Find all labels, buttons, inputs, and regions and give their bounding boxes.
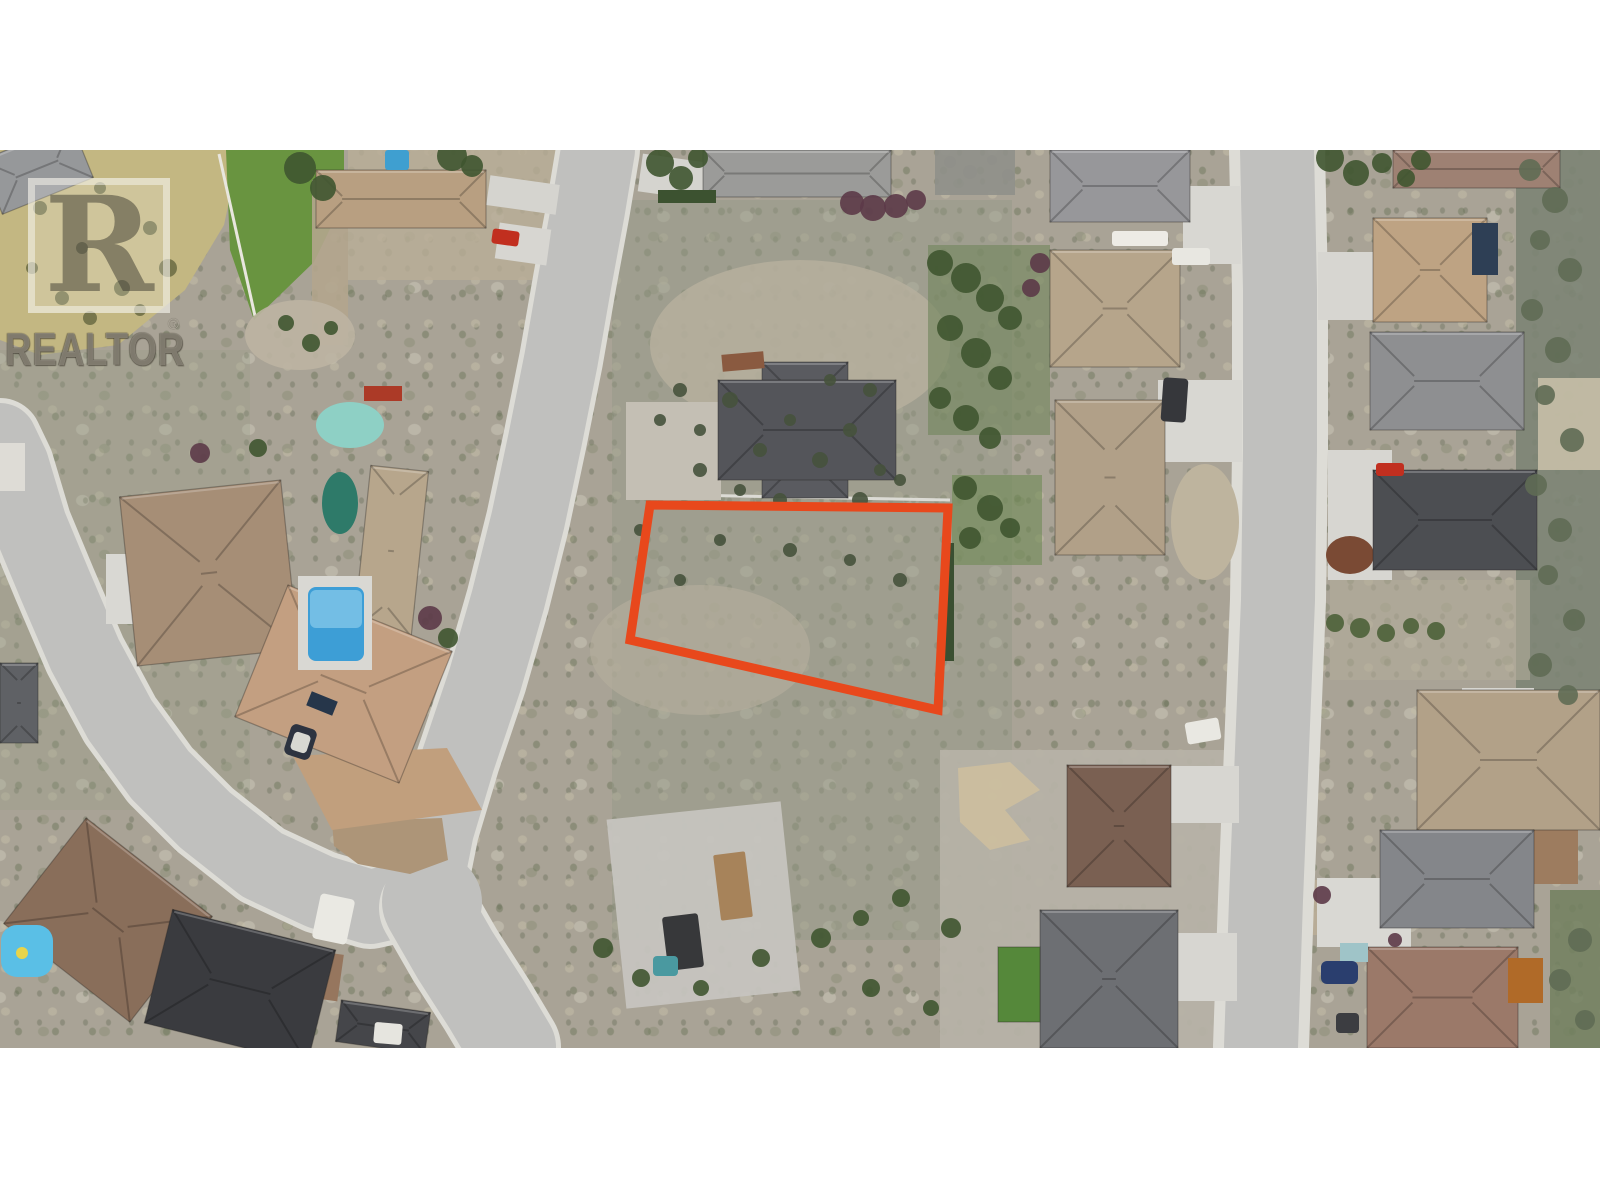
field-scrub (26, 262, 38, 274)
hillside-scrub (1528, 653, 1552, 677)
pool-floatie (16, 947, 28, 959)
tree (302, 334, 320, 352)
tree (977, 495, 1003, 521)
house-roof (1367, 947, 1518, 1048)
wood-deck (1508, 958, 1543, 1003)
tree (632, 969, 650, 987)
lot-bushes (673, 383, 687, 397)
bush-row (1377, 624, 1395, 642)
teal-truck (653, 956, 678, 976)
house-roof (316, 170, 486, 228)
tree (853, 910, 869, 926)
purple-tree (1388, 933, 1402, 947)
lot-bushes (722, 392, 738, 408)
lot-bushes (844, 554, 856, 566)
tree (1397, 169, 1415, 187)
pool-cover (310, 590, 362, 628)
tree (929, 387, 951, 409)
tree (278, 315, 294, 331)
white-rv (1112, 231, 1168, 246)
purple-tree (1313, 886, 1331, 904)
hillside-scrub (1535, 385, 1555, 405)
hillside-scrub (1525, 474, 1547, 496)
tree (951, 263, 981, 293)
tree (438, 628, 458, 648)
tree (892, 889, 910, 907)
white-rv (373, 1022, 403, 1045)
gravel-garden (245, 300, 355, 370)
tree (862, 979, 880, 997)
house-roof (1067, 765, 1171, 887)
hedge (658, 190, 716, 203)
purple-tree (840, 191, 864, 215)
purple-tree (884, 194, 908, 218)
white-rv (1184, 717, 1221, 745)
lot-bushes (784, 414, 796, 426)
lot-bushes (783, 543, 797, 557)
house-roof (1370, 332, 1524, 430)
lot-bushes (812, 452, 828, 468)
tree (1411, 150, 1431, 170)
blue-boat (1321, 961, 1358, 984)
lot-bushes (674, 574, 686, 586)
field-scrub (33, 201, 47, 215)
lot-bushes (894, 474, 906, 486)
tree (1343, 160, 1369, 186)
rocks (1002, 169, 1014, 181)
white-car (1172, 248, 1210, 265)
field-scrub (114, 280, 130, 296)
tree (646, 150, 674, 177)
rocks (987, 155, 997, 165)
tree (959, 527, 981, 549)
lot-bushes (714, 534, 726, 546)
lot-bushes (893, 573, 907, 587)
tree (923, 1000, 939, 1016)
field-scrub (55, 291, 69, 305)
hillside-scrub (1521, 299, 1543, 321)
lawn-strip (998, 947, 1040, 1022)
field-scrub (143, 221, 157, 235)
gravel-circle (1171, 464, 1239, 580)
house-roof (1380, 830, 1534, 928)
tree (249, 439, 267, 457)
lot-bushes (693, 463, 707, 477)
tree (988, 366, 1012, 390)
house-roof (1040, 910, 1178, 1048)
lot-bushes (863, 383, 877, 397)
tree (953, 476, 977, 500)
purple-tree (860, 195, 886, 221)
lot-bushes (843, 423, 857, 437)
purple-tree (906, 190, 926, 210)
house-roof (1417, 690, 1600, 830)
tree (979, 427, 1001, 449)
house-roof (1055, 400, 1165, 555)
house-roof (703, 150, 891, 197)
purple-tree (190, 443, 210, 463)
white-shed (0, 443, 25, 491)
hillside-scrub (1575, 1010, 1595, 1030)
tree (961, 338, 991, 368)
house-roof (1050, 250, 1180, 367)
rocks (944, 156, 956, 168)
house-roof (1373, 470, 1537, 570)
tree (593, 938, 613, 958)
brown-landscape-circle (1326, 536, 1374, 574)
hillside-scrub (1560, 428, 1584, 452)
field-scrub (94, 182, 106, 194)
real-estate-listing-photo-page: R REALTOR ® (0, 0, 1600, 1200)
bush-row (1350, 618, 1370, 638)
right-street (1261, 150, 1280, 1047)
teal-shed (1340, 943, 1368, 962)
tree (752, 949, 770, 967)
hillside-scrub (1538, 565, 1558, 585)
field-scrub (76, 242, 88, 254)
lot-bushes (824, 374, 836, 386)
bush-row (1403, 618, 1419, 634)
tree (693, 980, 709, 996)
rocks (963, 165, 977, 179)
hillside-scrub (1563, 609, 1585, 631)
aerial-photo (0, 150, 1600, 1048)
purple-tree (418, 606, 442, 630)
hillside-scrub (1558, 685, 1578, 705)
dark-pool (322, 472, 358, 534)
tree (461, 155, 483, 177)
house-roof (1373, 218, 1487, 322)
hillside-scrub (1568, 928, 1592, 952)
tree (1372, 153, 1392, 173)
solar-panels (1472, 223, 1498, 275)
tree (941, 918, 961, 938)
hillside-scrub (1519, 159, 1541, 181)
tree (953, 405, 979, 431)
tree (669, 166, 693, 190)
lot-bushes (874, 464, 886, 476)
tree (927, 250, 953, 276)
dirt-patch (590, 585, 810, 715)
tree (310, 175, 336, 201)
gravel-apron (626, 402, 721, 500)
house-roof (0, 663, 38, 743)
hillside-scrub (1545, 337, 1571, 363)
tree (324, 321, 338, 335)
field-scrub (83, 311, 97, 325)
field-scrub (159, 259, 177, 277)
lot-bushes (694, 424, 706, 436)
red-shed (364, 386, 402, 401)
lot-bushes (734, 484, 746, 496)
kidney-pool (316, 402, 384, 448)
hillside-scrub (1542, 187, 1568, 213)
lot-bushes (654, 414, 666, 426)
house-roof (1050, 150, 1190, 222)
bush-row (1427, 622, 1445, 640)
hillside-scrub (1530, 230, 1550, 250)
purple-tree (1022, 279, 1040, 297)
dark-suv (1160, 377, 1188, 423)
tree (811, 928, 831, 948)
driveway (1175, 933, 1237, 1001)
bush-row (1326, 614, 1344, 632)
driveway (1170, 766, 1239, 823)
hillside-scrub (1549, 969, 1571, 991)
tree (284, 152, 316, 184)
aerial-scene (0, 150, 1600, 1048)
tree (976, 284, 1004, 312)
field-scrub (134, 304, 146, 316)
hillside-scrub (1548, 518, 1572, 542)
purple-tree (1030, 253, 1050, 273)
dark-car (1336, 1013, 1359, 1033)
small-pool (385, 150, 409, 170)
hillside-scrub (1558, 258, 1582, 282)
red-car (1376, 463, 1404, 476)
tree (998, 306, 1022, 330)
tree (1000, 518, 1020, 538)
tree (937, 315, 963, 341)
lot-bushes (753, 443, 767, 457)
